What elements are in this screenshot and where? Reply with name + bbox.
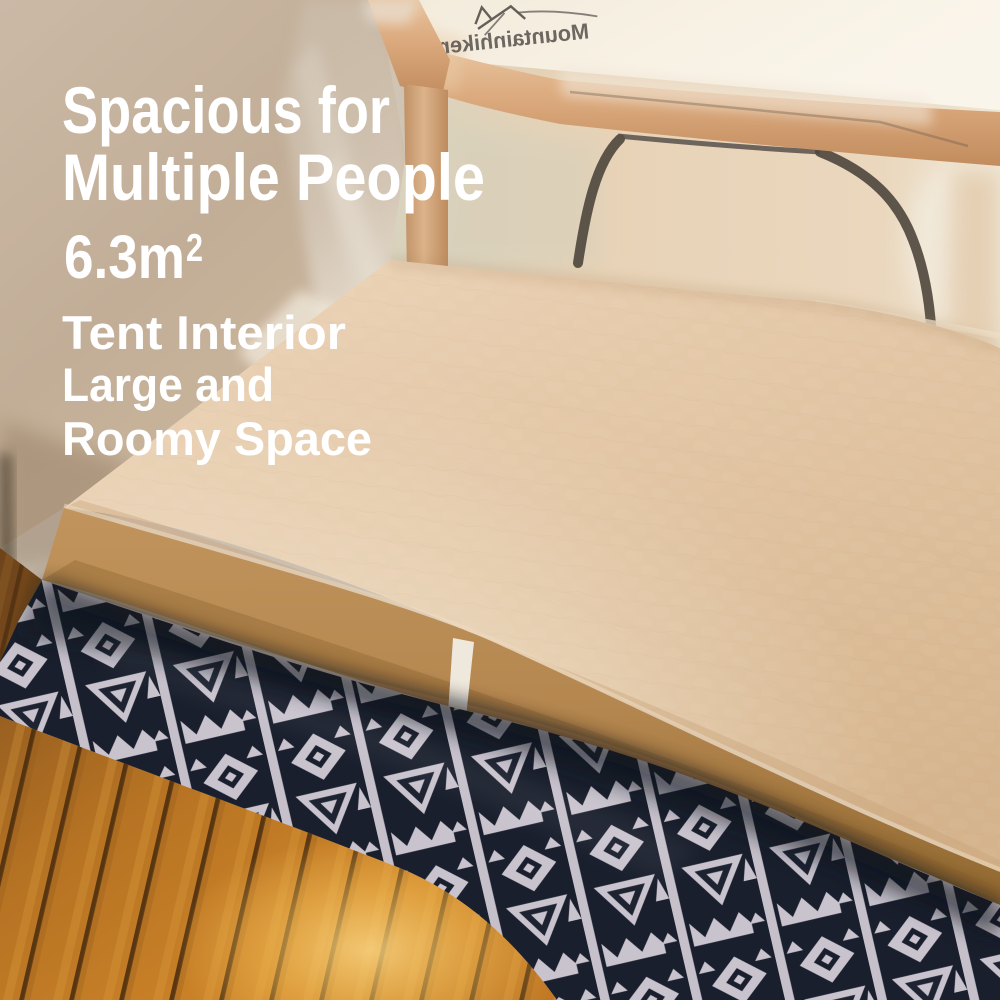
svg-text:Spacious for: Spacious for xyxy=(62,73,390,147)
svg-text:Multiple People: Multiple People xyxy=(62,140,485,214)
svg-text:6.3m: 6.3m xyxy=(64,223,185,291)
svg-text:Tent Interior: Tent Interior xyxy=(62,306,346,359)
svg-text:2: 2 xyxy=(186,227,203,270)
svg-text:Large and: Large and xyxy=(62,358,274,411)
svg-text:Roomy Space: Roomy Space xyxy=(62,412,372,465)
